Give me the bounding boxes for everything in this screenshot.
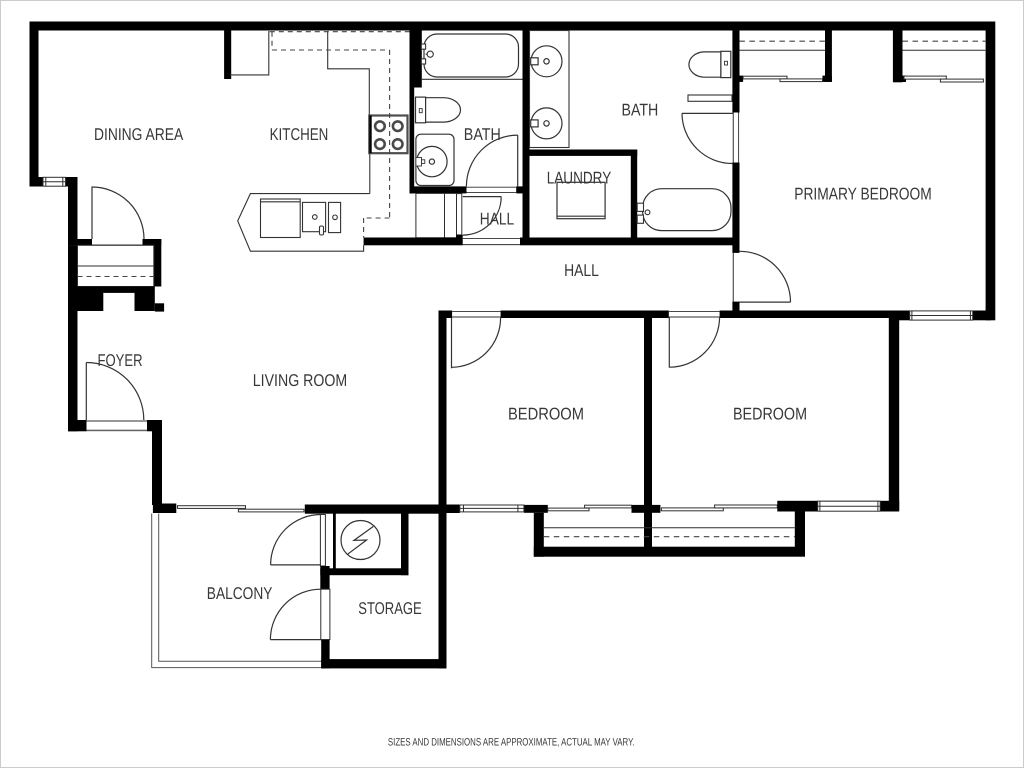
svg-text:HALL: HALL [564, 261, 599, 280]
svg-text:HALL: HALL [480, 210, 514, 229]
svg-text:LAUNDRY: LAUNDRY [547, 169, 612, 188]
svg-text:FOYER: FOYER [98, 351, 143, 370]
svg-text:LIVING ROOM: LIVING ROOM [253, 371, 347, 390]
svg-text:BEDROOM: BEDROOM [508, 405, 584, 424]
svg-text:DINING AREA: DINING AREA [94, 125, 184, 144]
svg-text:SIZES AND DIMENSIONS ARE APPRO: SIZES AND DIMENSIONS ARE APPROXIMATE, AC… [388, 737, 635, 749]
svg-text:PRIMARY BEDROOM: PRIMARY BEDROOM [794, 185, 932, 204]
svg-text:STORAGE: STORAGE [358, 599, 422, 618]
svg-text:BEDROOM: BEDROOM [733, 405, 807, 424]
svg-text:BALCONY: BALCONY [207, 584, 273, 603]
svg-text:BATH: BATH [622, 101, 659, 120]
svg-text:KITCHEN: KITCHEN [270, 125, 329, 144]
svg-text:BATH: BATH [464, 125, 501, 144]
